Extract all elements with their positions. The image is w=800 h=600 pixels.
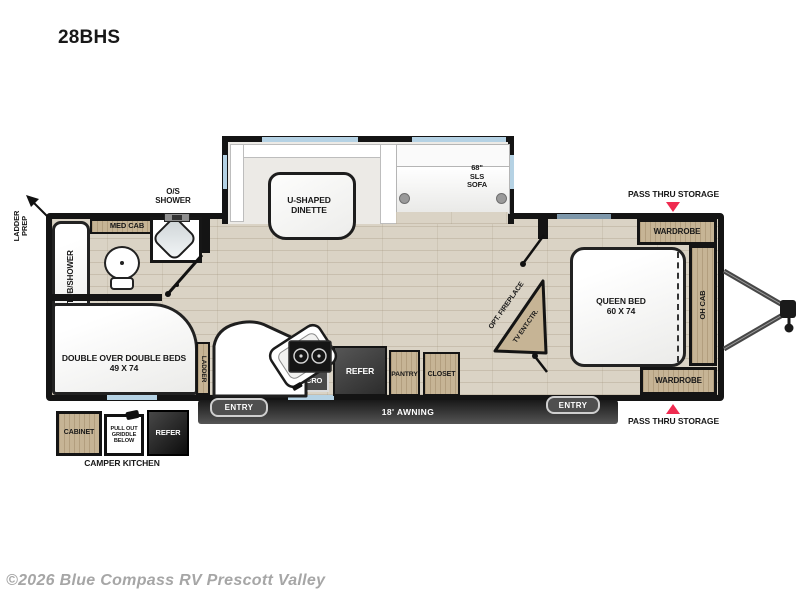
dinette-label: U-SHAPED DINETTE <box>264 195 354 217</box>
dinette-bench-left <box>230 144 244 222</box>
bath-wall-vertical <box>202 217 210 253</box>
bedroom-oh-cab-label: OH CAB <box>697 260 709 350</box>
slide-floor-strip <box>396 212 508 224</box>
toilet-base <box>110 277 134 290</box>
kitchen-oh-cab-label: OH CAB <box>226 379 276 391</box>
floorplan-page: { "model": "28BHS", "watermark": "©2026 … <box>0 0 800 600</box>
kitchen-closet-label: CLOSET <box>422 370 461 380</box>
entry-left-label: ENTRY <box>225 403 254 412</box>
queen-bed-dashed-edge <box>676 252 679 362</box>
bedroom-wall-stub <box>538 213 548 239</box>
sofa-pivot-right <box>496 193 507 204</box>
slide-window-right-top <box>412 137 506 142</box>
camper-kitchen-caption: CAMPER KITCHEN <box>62 458 182 470</box>
os-shower-label: O/S SHOWER <box>146 186 200 208</box>
entry-right-label: ENTRY <box>559 401 588 410</box>
os-shower-head-icon <box>172 215 182 220</box>
slide-window-left-top <box>262 137 358 142</box>
model-title: 28BHS <box>58 26 148 50</box>
camper-kitchen-griddle-label: PULL OUT GRIDDLE BELOW <box>106 419 142 451</box>
entry-door-right: ENTRY <box>546 396 600 414</box>
bunk-window <box>107 395 157 400</box>
dinette-bench-top <box>230 144 390 158</box>
pass-thru-bottom-arrow-icon <box>666 404 680 414</box>
kitchen-refer-label: REFER <box>335 366 385 378</box>
pass-thru-top-arrow-icon <box>666 202 680 212</box>
med-cab-label: MED CAB <box>92 220 162 233</box>
dinette-sofa-divider <box>380 144 397 224</box>
watermark: ©2026 Blue Compass RV Prescott Valley <box>6 570 406 592</box>
bunk-ladder-label: LADDER <box>198 345 208 393</box>
kitchen-micro-label: MICRO <box>291 375 329 387</box>
kitchen-window <box>288 395 334 400</box>
slide-window-left-side <box>223 155 228 189</box>
camper-kitchen-refer-label: REFER <box>148 427 188 439</box>
bedroom-window <box>557 214 611 219</box>
sofa-label: 68" SLS SOFA <box>449 160 505 194</box>
sofa-pivot-left <box>399 193 410 204</box>
kitchen-pantry-label: PANTRY <box>388 370 421 380</box>
bedroom-wardrobe-top-label: WARDROBE <box>639 226 715 238</box>
bunk-beds-label: DOUBLE OVER DOUBLE BEDS 49 X 74 <box>57 353 191 375</box>
entry-door-left: ENTRY <box>210 398 268 417</box>
pass-thru-bottom-label: PASS THRU STORAGE <box>606 416 741 427</box>
tub-shower-label: TUB/SHOWER <box>63 222 79 332</box>
camper-kitchen-cabinet-label: CABINET <box>57 427 101 439</box>
ladder-prep-label: LADDER PREP <box>10 198 32 254</box>
toilet-drain <box>120 261 124 265</box>
queen-bed-label: QUEEN BED 60 X 74 <box>566 296 676 318</box>
bedroom-wardrobe-bottom-label: WARDROBE <box>641 375 716 387</box>
pass-thru-top-label: PASS THRU STORAGE <box>606 189 741 200</box>
